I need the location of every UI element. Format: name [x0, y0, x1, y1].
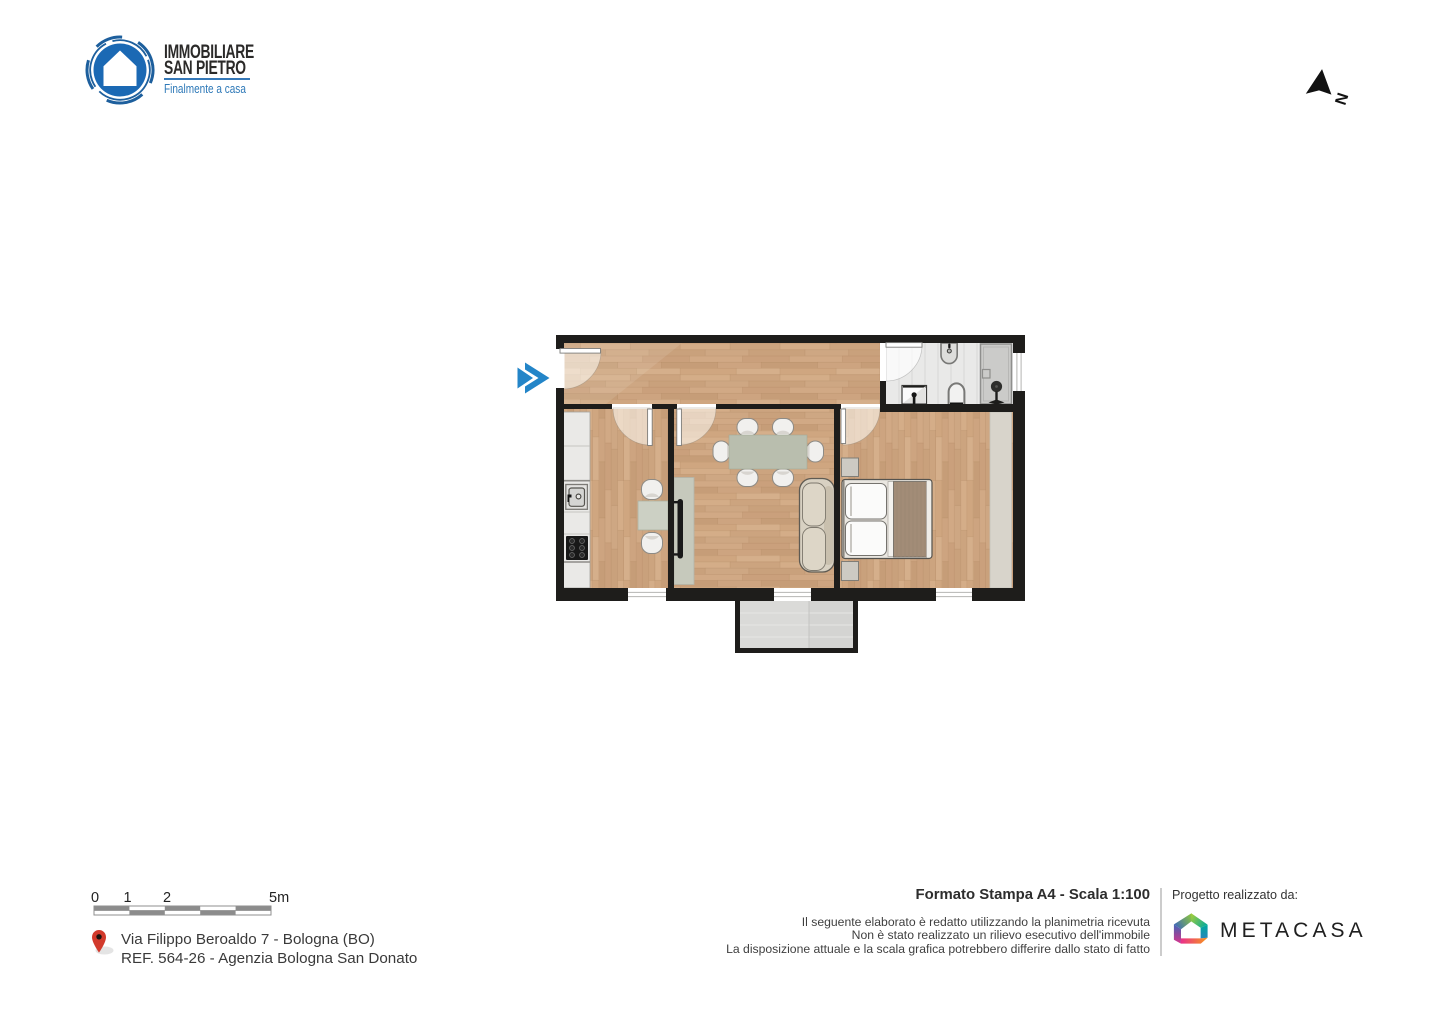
svg-text:5m: 5m [269, 890, 289, 906]
svg-text:1: 1 [124, 890, 132, 906]
svg-text:2: 2 [163, 890, 171, 906]
svg-text:N: N [1331, 90, 1351, 106]
svg-text:0: 0 [91, 890, 99, 906]
